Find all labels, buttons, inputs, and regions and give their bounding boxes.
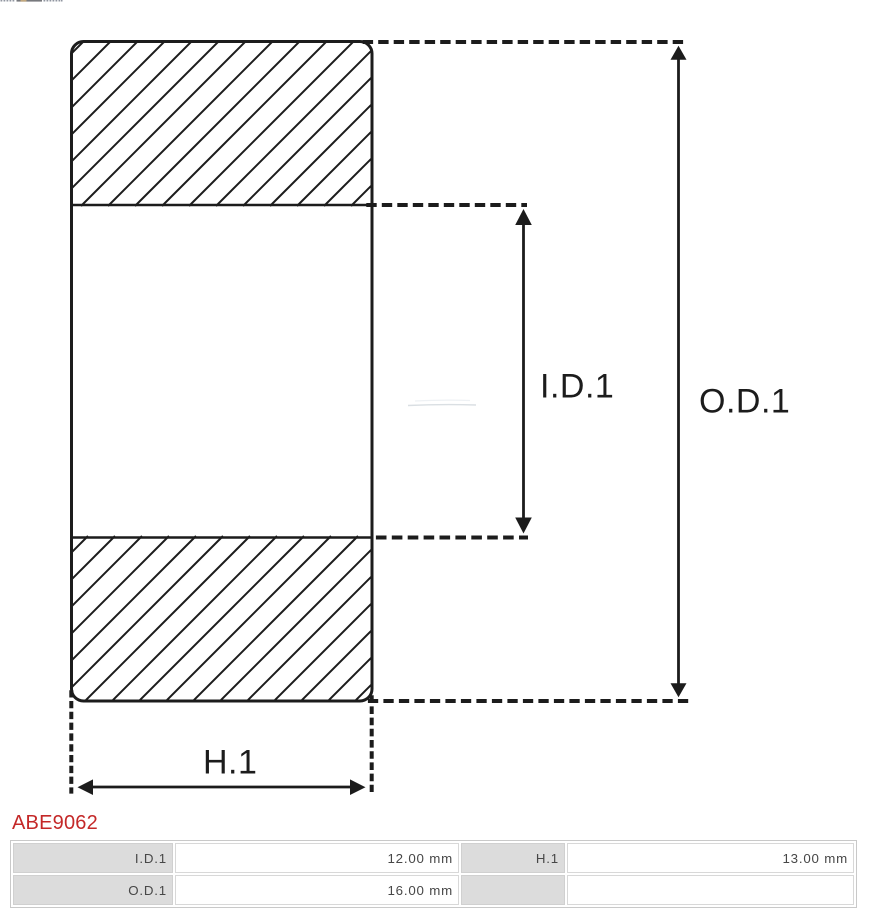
- svg-text:H.1: H.1: [203, 744, 257, 782]
- svg-text:O.D.1: O.D.1: [699, 383, 790, 421]
- svg-text:I.D.1: I.D.1: [540, 368, 614, 406]
